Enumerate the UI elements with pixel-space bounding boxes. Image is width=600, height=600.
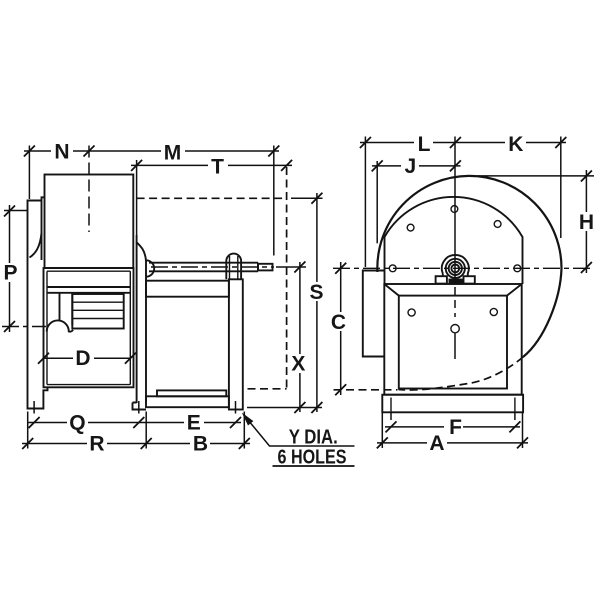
svg-text:P: P xyxy=(3,262,17,285)
svg-text:E: E xyxy=(187,412,201,435)
svg-text:J: J xyxy=(405,155,417,178)
svg-text:Q: Q xyxy=(69,412,85,435)
svg-text:S: S xyxy=(309,281,323,304)
svg-text:K: K xyxy=(508,133,523,156)
svg-text:B: B xyxy=(193,433,208,456)
svg-text:M: M xyxy=(164,142,182,165)
svg-text:C: C xyxy=(331,311,346,334)
svg-text:6 HOLES: 6 HOLES xyxy=(278,447,347,469)
svg-text:L: L xyxy=(418,133,431,156)
svg-text:A: A xyxy=(429,432,444,455)
svg-text:T: T xyxy=(211,156,224,179)
svg-text:N: N xyxy=(54,141,69,164)
svg-text:Y DIA.: Y DIA. xyxy=(289,427,338,449)
svg-text:R: R xyxy=(89,433,104,456)
svg-text:X: X xyxy=(291,353,305,376)
svg-text:D: D xyxy=(75,347,90,370)
svg-text:H: H xyxy=(579,211,594,234)
svg-text:F: F xyxy=(449,416,462,439)
